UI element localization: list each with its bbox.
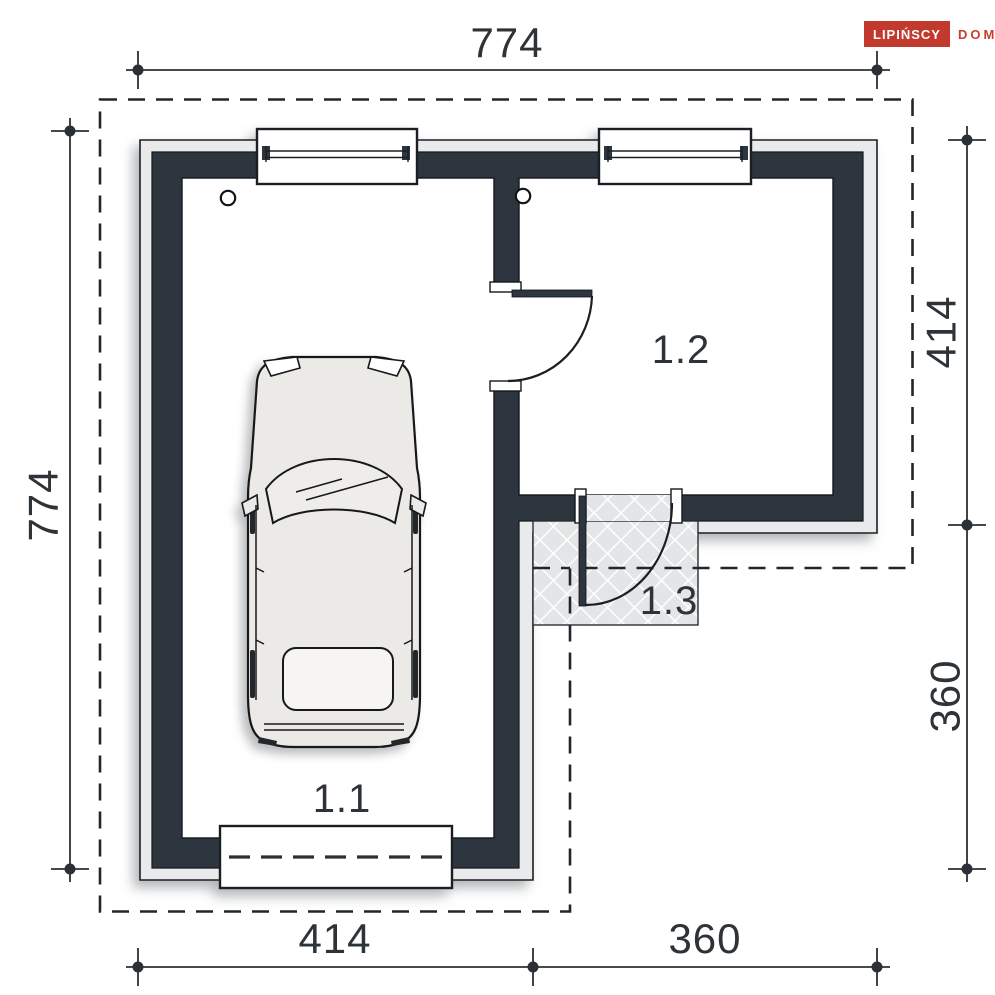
garage-door	[220, 826, 452, 888]
bottom-dimension	[126, 948, 890, 986]
window-garage	[257, 129, 417, 184]
door-leaf	[512, 290, 592, 297]
porch-label: 1.3	[640, 579, 699, 623]
pipe-symbol-garage	[221, 191, 235, 205]
garage-room-label: 1.1	[313, 777, 372, 821]
brand-primary: LIPIŃSCY	[873, 27, 941, 42]
car-wheel	[250, 650, 255, 698]
door-opening	[493, 291, 520, 382]
dimension-label-bottom-right: 360	[668, 915, 741, 962]
floor-plan-canvas: 1.1 1.2 1.3 774 774 4	[0, 0, 995, 995]
dimension-dot	[872, 65, 882, 75]
floor-plan-drawing: 1.1 1.2 1.3 774 774 4	[0, 0, 995, 995]
brand-secondary: DOMY	[958, 21, 995, 47]
dimension-label-top: 774	[470, 19, 543, 66]
door-leaf	[579, 496, 586, 606]
dimension-dot	[65, 864, 75, 874]
dimension-label-bottom-left: 414	[298, 915, 371, 962]
car-illustration	[242, 357, 426, 747]
brand-logo-box: LIPIŃSCY	[864, 21, 950, 47]
dimension-label-left: 774	[20, 468, 67, 541]
porch-door-recess	[586, 495, 672, 521]
dimension-dot	[962, 135, 972, 145]
car-wheel	[413, 650, 418, 698]
brand-logo: LIPIŃSCY DOMY	[864, 21, 995, 47]
car-rear-window	[283, 648, 393, 710]
dimension-dot	[962, 864, 972, 874]
door-jamb	[490, 381, 521, 391]
dimension-dot	[65, 126, 75, 136]
right-dimension	[948, 126, 986, 882]
dimension-line	[948, 126, 986, 882]
window-room	[599, 129, 751, 184]
pipe-symbol-room	[516, 189, 530, 203]
window-frame	[257, 129, 417, 184]
dimension-dot	[528, 962, 538, 972]
dimension-dot	[133, 65, 143, 75]
dimension-label-right-lower: 360	[922, 659, 969, 732]
dimension-dot	[133, 962, 143, 972]
room-label: 1.2	[652, 328, 711, 372]
window-frame	[599, 129, 751, 184]
dimension-dot	[962, 520, 972, 530]
dimension-dot	[872, 962, 882, 972]
dimension-label-right-upper: 414	[918, 295, 965, 368]
dimension-line	[126, 948, 890, 986]
